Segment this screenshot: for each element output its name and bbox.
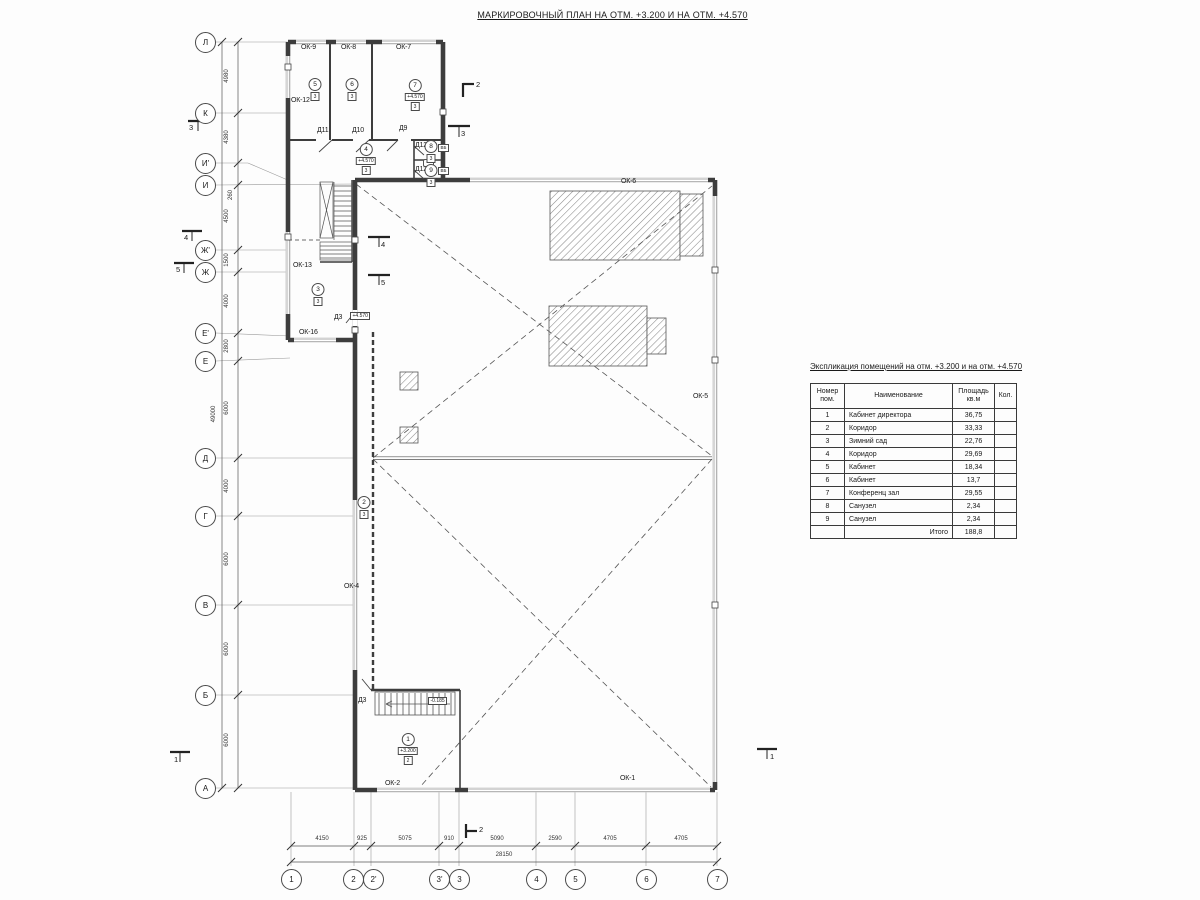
- room-sub-box: 3: [348, 92, 357, 101]
- col-header-area: Площадькв.м: [953, 384, 995, 409]
- section-number: 5: [381, 279, 385, 287]
- table-row: 4Коридор29,69: [811, 448, 1017, 461]
- room-mark-3: 3 3: [312, 283, 325, 306]
- dim-row-total: 49000: [211, 397, 217, 431]
- table-row: 8Санузел2,34: [811, 500, 1017, 513]
- table-header-row: Номерпом. Наименование Площадькв.м Кол.: [811, 384, 1017, 409]
- room-sub-box: 3: [411, 102, 420, 111]
- grid-row-bubble: Ж': [195, 240, 216, 261]
- grid-row-bubble: Е': [195, 323, 216, 344]
- door-label: Д3: [358, 697, 366, 704]
- room-mark-9: 9 3: [425, 164, 438, 187]
- grid-col-bubble: 2': [363, 869, 384, 890]
- grid-row-bubble: Г: [195, 506, 216, 527]
- dim-row: 4500: [224, 201, 230, 231]
- section-number: 2: [476, 81, 480, 89]
- table-row: 7Конференц зал29,55: [811, 487, 1017, 500]
- door-label: Д3: [334, 314, 342, 321]
- room-sub-box: 3: [360, 510, 369, 519]
- grid-row-bubble: Л: [195, 32, 216, 53]
- room-explication: Экспликация помещений на отм. +3.200 и н…: [810, 362, 1016, 539]
- stairs-upper: [320, 182, 352, 260]
- room-mark-1: 1 +3.200 2: [398, 733, 418, 765]
- room-sub-box: 3: [311, 92, 320, 101]
- ridge-line: [373, 457, 712, 460]
- room-sub-box: 3: [427, 154, 436, 163]
- grid-col-bubble: 2: [343, 869, 364, 890]
- room-mark-5: 5 3: [309, 78, 322, 101]
- drawing-sheet: МАРКИРОВОЧНЫЙ ПЛАН НА ОТМ. +3.200 И НА О…: [0, 0, 1200, 900]
- grid-row-bubble: И': [195, 153, 216, 174]
- dim-col: 4705: [661, 836, 701, 842]
- dimension-chains: [218, 38, 721, 866]
- room-mark-2: 2 3: [358, 496, 371, 519]
- grid-col-bubble: 3: [449, 869, 470, 890]
- section-number: 1: [174, 756, 178, 764]
- room-mark-7: 7 +4.570 3: [405, 79, 425, 111]
- window-label: ОК-7: [396, 44, 411, 51]
- dim-row: 1500: [224, 245, 230, 275]
- section-number: 2: [479, 826, 483, 834]
- windows: [286, 40, 718, 793]
- grid-row-bubble: В: [195, 595, 216, 616]
- dim-row: 4000: [224, 286, 230, 316]
- vent-block-icon: ВБ: [438, 167, 449, 175]
- dim-col: 925: [342, 836, 382, 842]
- room-number-circle: 2: [358, 496, 371, 509]
- room-sub-box: 2: [404, 756, 413, 765]
- table-row: 9Санузел2,34: [811, 513, 1017, 526]
- dim-row: 6000: [224, 725, 230, 755]
- table-row: 1Кабинет директора36,75: [811, 409, 1017, 422]
- grid-col-bubble: 6: [636, 869, 657, 890]
- grid-row-bubble: Д: [195, 448, 216, 469]
- grid-row-bubble: Б: [195, 685, 216, 706]
- dim-col: 5090: [477, 836, 517, 842]
- room-number-circle: 4: [360, 143, 373, 156]
- table-row: 5Кабинет18,34: [811, 461, 1017, 474]
- room-sub-box: 3: [427, 178, 436, 187]
- dim-col: 2590: [535, 836, 575, 842]
- dim-col: 4150: [302, 836, 342, 842]
- grid-lines: [216, 42, 717, 866]
- window-label: ОК-5: [693, 393, 708, 400]
- col-header-name: Наименование: [845, 384, 953, 409]
- dim-row: 4380: [224, 122, 230, 152]
- elevation-box: +4.570: [350, 312, 370, 320]
- dim-row: 4000: [224, 471, 230, 501]
- room-number-circle: 8: [425, 140, 438, 153]
- table-total-row: Итого188,8: [811, 526, 1017, 539]
- room-number-circle: 9: [425, 164, 438, 177]
- table-row: 2Коридор33,33: [811, 422, 1017, 435]
- room-elevation-box: +3.200: [398, 747, 418, 755]
- grid-row-bubble: А: [195, 778, 216, 799]
- door-label: Д9: [399, 125, 407, 132]
- room-mark-8: 8 3: [425, 140, 438, 163]
- dim-col-total: 28150: [484, 852, 524, 858]
- grid-row-bubble: Е: [195, 351, 216, 372]
- section-number: 3: [189, 124, 193, 132]
- room-number-circle: 1: [402, 733, 415, 746]
- section-number: 4: [381, 241, 385, 249]
- room-mark-6: 6 3: [346, 78, 359, 101]
- window-label: ОК-9: [301, 44, 316, 51]
- grid-col-bubble: 1: [281, 869, 302, 890]
- door-label: Д10: [352, 127, 364, 134]
- grid-row-bubble: И: [195, 175, 216, 196]
- section-number: 1: [770, 753, 774, 761]
- room-number-circle: 6: [346, 78, 359, 91]
- dim-col: 4705: [590, 836, 630, 842]
- room-sub-box: 3: [362, 166, 371, 175]
- door-leaves: [319, 140, 424, 690]
- room-number-circle: 5: [309, 78, 322, 91]
- floor-plan-linework: [0, 0, 1200, 900]
- window-label: ОК-12: [291, 97, 310, 104]
- outer-walls: [288, 42, 715, 790]
- grid-col-bubble: 5: [565, 869, 586, 890]
- dim-row: 6000: [224, 634, 230, 664]
- grid-row-bubble: К: [195, 103, 216, 124]
- col-header-qty: Кол.: [995, 384, 1017, 409]
- door-label: Д11: [317, 127, 328, 134]
- section-number: 3: [461, 130, 465, 138]
- room-mark-4: 4 +4.570 3: [356, 143, 376, 175]
- room-elevation-box: +4.570: [405, 93, 425, 101]
- window-label: ОК-1: [620, 775, 635, 782]
- dim-col: 910: [429, 836, 469, 842]
- window-label: ОК-6: [621, 178, 636, 185]
- grid-row-bubble: Ж: [195, 262, 216, 283]
- window-label: ОК-4: [344, 583, 359, 590]
- room-elevation-box: +4.570: [356, 157, 376, 165]
- dim-col: 5075: [385, 836, 425, 842]
- col-header-number: Номерпом.: [811, 384, 845, 409]
- section-number: 4: [184, 234, 188, 242]
- section-number: 5: [176, 266, 180, 274]
- table-row: 6Кабинет13,7: [811, 474, 1017, 487]
- window-label: ОК-16: [299, 329, 318, 336]
- dim-row: 4980: [224, 61, 230, 91]
- explication-title: Экспликация помещений на отм. +3.200 и н…: [810, 362, 1016, 371]
- dim-row: 2800: [224, 331, 230, 361]
- window-label: ОК-8: [341, 44, 356, 51]
- grid-col-bubble: 3': [429, 869, 450, 890]
- elevation-box: -0.185: [428, 697, 447, 705]
- table-row: 3Зимний сад22,76: [811, 435, 1017, 448]
- room-sub-box: 3: [314, 297, 323, 306]
- vent-block-icon: ВБ: [438, 144, 449, 152]
- room-number-circle: 7: [409, 79, 422, 92]
- dim-row: 6000: [224, 544, 230, 574]
- room-explication-table: Номерпом. Наименование Площадькв.м Кол. …: [810, 383, 1017, 539]
- window-label: ОК-2: [385, 780, 400, 787]
- dim-row: 6000: [224, 393, 230, 423]
- grid-col-bubble: 7: [707, 869, 728, 890]
- room-number-circle: 3: [312, 283, 325, 296]
- window-label: ОК-13: [293, 262, 312, 269]
- hatch-areas: [400, 191, 703, 443]
- grid-col-bubble: 4: [526, 869, 547, 890]
